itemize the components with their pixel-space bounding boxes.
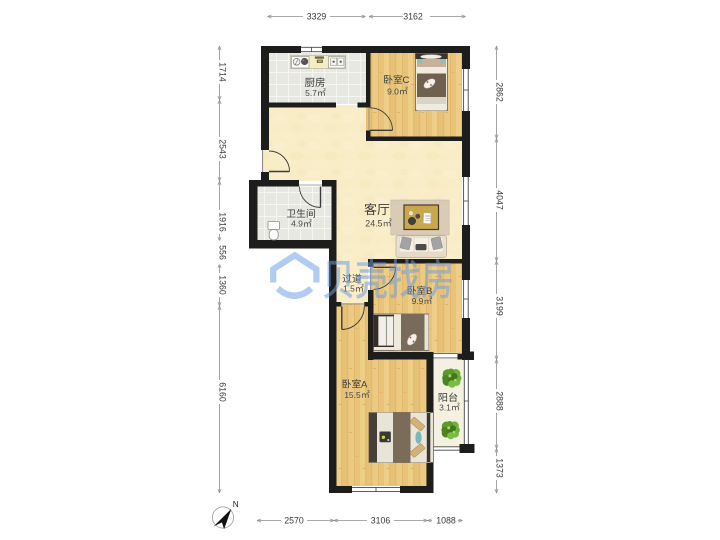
svg-text:1714: 1714 (218, 62, 228, 82)
svg-text:6160: 6160 (218, 382, 228, 402)
svg-text:24.5: 24.5 (365, 218, 382, 228)
svg-text:A: A (361, 380, 368, 391)
svg-text:3106: 3106 (371, 516, 391, 526)
svg-text:4.9: 4.9 (291, 219, 303, 229)
svg-text:556: 556 (218, 245, 228, 260)
svg-text:C: C (403, 75, 410, 86)
svg-text:2570: 2570 (284, 516, 304, 526)
svg-text:3199: 3199 (495, 296, 505, 316)
svg-text:2888: 2888 (495, 391, 505, 411)
svg-text:3329: 3329 (307, 12, 327, 22)
svg-text:5.7: 5.7 (305, 88, 317, 98)
svg-text:1360: 1360 (218, 275, 228, 295)
svg-text:4047: 4047 (495, 190, 505, 210)
svg-text:3.1: 3.1 (439, 402, 451, 412)
svg-text:1916: 1916 (218, 212, 228, 232)
svg-text:3162: 3162 (403, 12, 423, 22)
svg-text:2862: 2862 (495, 82, 505, 102)
svg-text:1373: 1373 (495, 458, 505, 478)
svg-text:9.0: 9.0 (387, 86, 399, 96)
svg-text:15.5: 15.5 (344, 390, 361, 400)
svg-text:1088: 1088 (436, 516, 456, 526)
svg-text:2543: 2543 (218, 139, 228, 159)
svg-text:N: N (233, 500, 239, 509)
